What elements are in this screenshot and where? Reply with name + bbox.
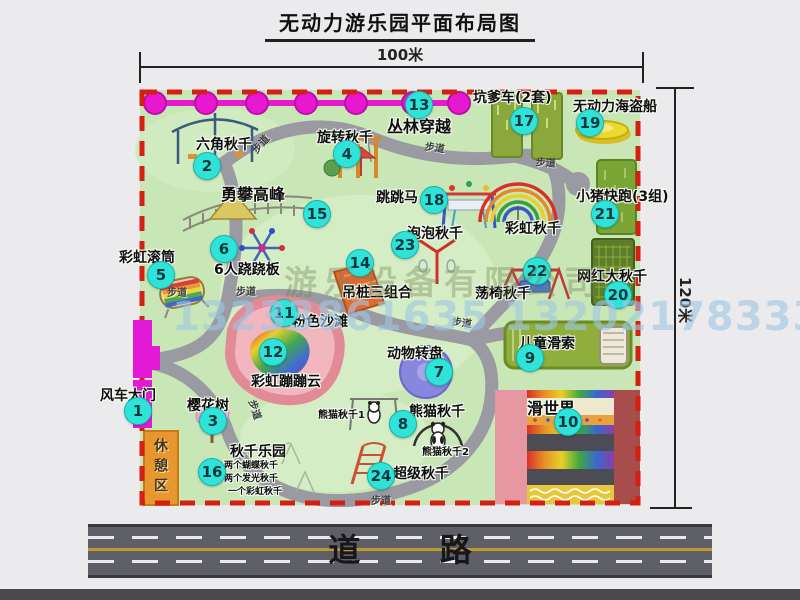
bottom-edge-bar <box>0 589 800 600</box>
badge-1: 1 <box>124 397 152 425</box>
badge-18: 18 <box>420 186 448 214</box>
badge-9: 9 <box>516 344 544 372</box>
walkway-label: 步道 <box>371 492 391 507</box>
badge-4: 4 <box>333 140 361 168</box>
label-panda-swing-2: 熊猫秋千2 <box>422 443 469 458</box>
badge-12: 12 <box>259 338 287 366</box>
badge-15: 15 <box>303 200 331 228</box>
label-piggy-run: 小猪快跑(3组) <box>576 186 669 206</box>
badge-8: 8 <box>389 410 417 438</box>
park-layout-page: 无动力游乐园平面布局图 100米 120米 <box>0 0 800 600</box>
label-hexagon-swing: 六角秋千 <box>196 134 252 154</box>
page-title: 无动力游乐园平面布局图 <box>0 7 800 42</box>
road-label: 道 路 <box>88 527 712 575</box>
label-panda-swing: 熊猫秋千 <box>409 401 465 421</box>
badge-2: 2 <box>193 152 221 180</box>
label-panda-swing-1: 熊猫秋千1 <box>318 406 365 421</box>
swing-park-note-1: 两个蝴蝶秋千 <box>224 458 278 471</box>
walkway-label: 步道 <box>536 153 557 169</box>
road: 道 路 <box>88 524 712 578</box>
badge-3: 3 <box>199 407 227 435</box>
badge-21: 21 <box>591 200 619 228</box>
swing-park-note-3: 一个彩虹秋千 <box>228 484 282 497</box>
badge-7: 7 <box>425 358 453 386</box>
badge-10: 10 <box>554 408 582 436</box>
label-jumping-horse: 跳跳马 <box>376 187 418 207</box>
badge-23: 23 <box>391 231 419 259</box>
label-super-swing: 超级秋千 <box>393 463 449 483</box>
badge-19: 19 <box>576 109 604 137</box>
label-rainbow-cloud: 彩虹蹦蹦云 <box>251 371 321 391</box>
walkway-label: 步道 <box>424 138 446 156</box>
badge-13: 13 <box>405 91 433 119</box>
label-peak-climb: 勇攀高峰 <box>221 181 285 205</box>
page-title-text: 无动力游乐园平面布局图 <box>265 7 535 42</box>
rest-area-label: 休憩区 <box>150 438 170 498</box>
swing-park-note-2: 两个发光秋千 <box>224 471 278 484</box>
label-rainbow-swing: 彩虹秋千 <box>505 218 561 238</box>
watermark-phone: 13233861635 13202178333 <box>172 294 800 340</box>
dimension-width-label: 100米 <box>340 44 460 65</box>
badge-16: 16 <box>198 458 226 486</box>
badge-24: 24 <box>367 462 395 490</box>
label-pit-cars: 坑爹车(2套) <box>473 87 552 107</box>
badge-5: 5 <box>147 261 175 289</box>
badge-6: 6 <box>210 235 238 263</box>
badge-17: 17 <box>510 107 538 135</box>
